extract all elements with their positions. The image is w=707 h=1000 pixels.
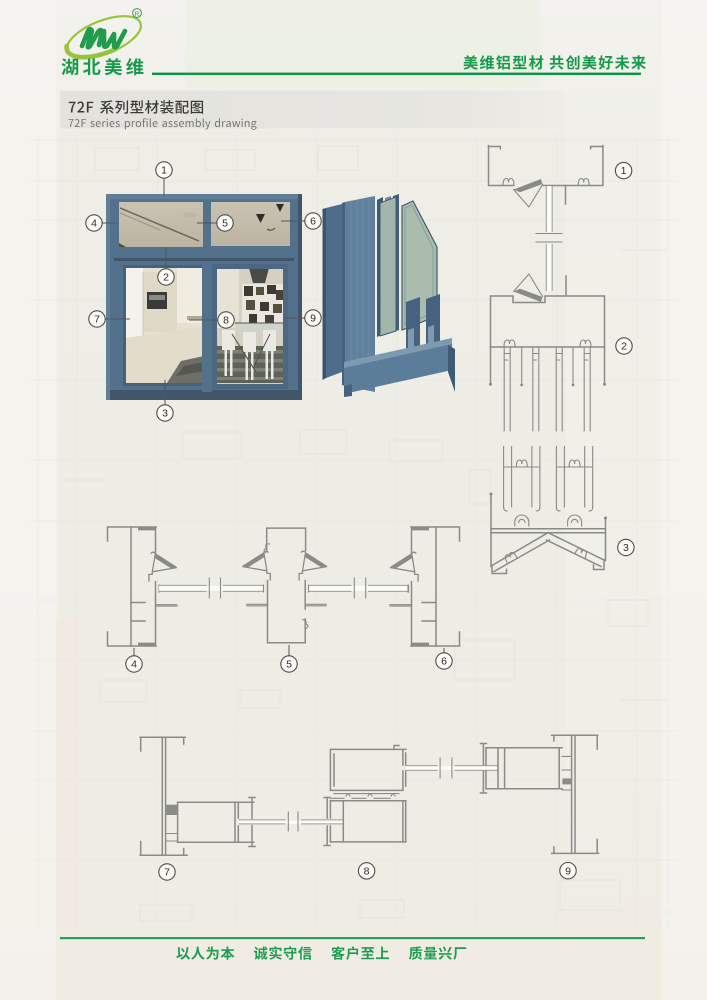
- svg-text:1: 1: [161, 165, 167, 177]
- svg-text:5: 5: [286, 659, 292, 671]
- svg-text:2: 2: [621, 341, 627, 353]
- svg-text:7: 7: [94, 314, 100, 326]
- svg-text:6: 6: [310, 216, 316, 228]
- svg-text:1: 1: [621, 165, 627, 177]
- svg-text:2: 2: [163, 272, 169, 284]
- svg-text:4: 4: [91, 218, 97, 230]
- svg-text:9: 9: [565, 865, 571, 877]
- svg-text:3: 3: [162, 408, 168, 420]
- svg-text:3: 3: [623, 542, 629, 554]
- svg-text:5: 5: [222, 218, 228, 230]
- svg-text:7: 7: [164, 867, 170, 879]
- svg-text:6: 6: [441, 656, 447, 668]
- svg-text:4: 4: [131, 659, 137, 671]
- svg-text:8: 8: [223, 315, 229, 327]
- svg-text:9: 9: [310, 313, 316, 325]
- svg-text:8: 8: [364, 866, 370, 878]
- svg-text:R: R: [135, 11, 140, 18]
